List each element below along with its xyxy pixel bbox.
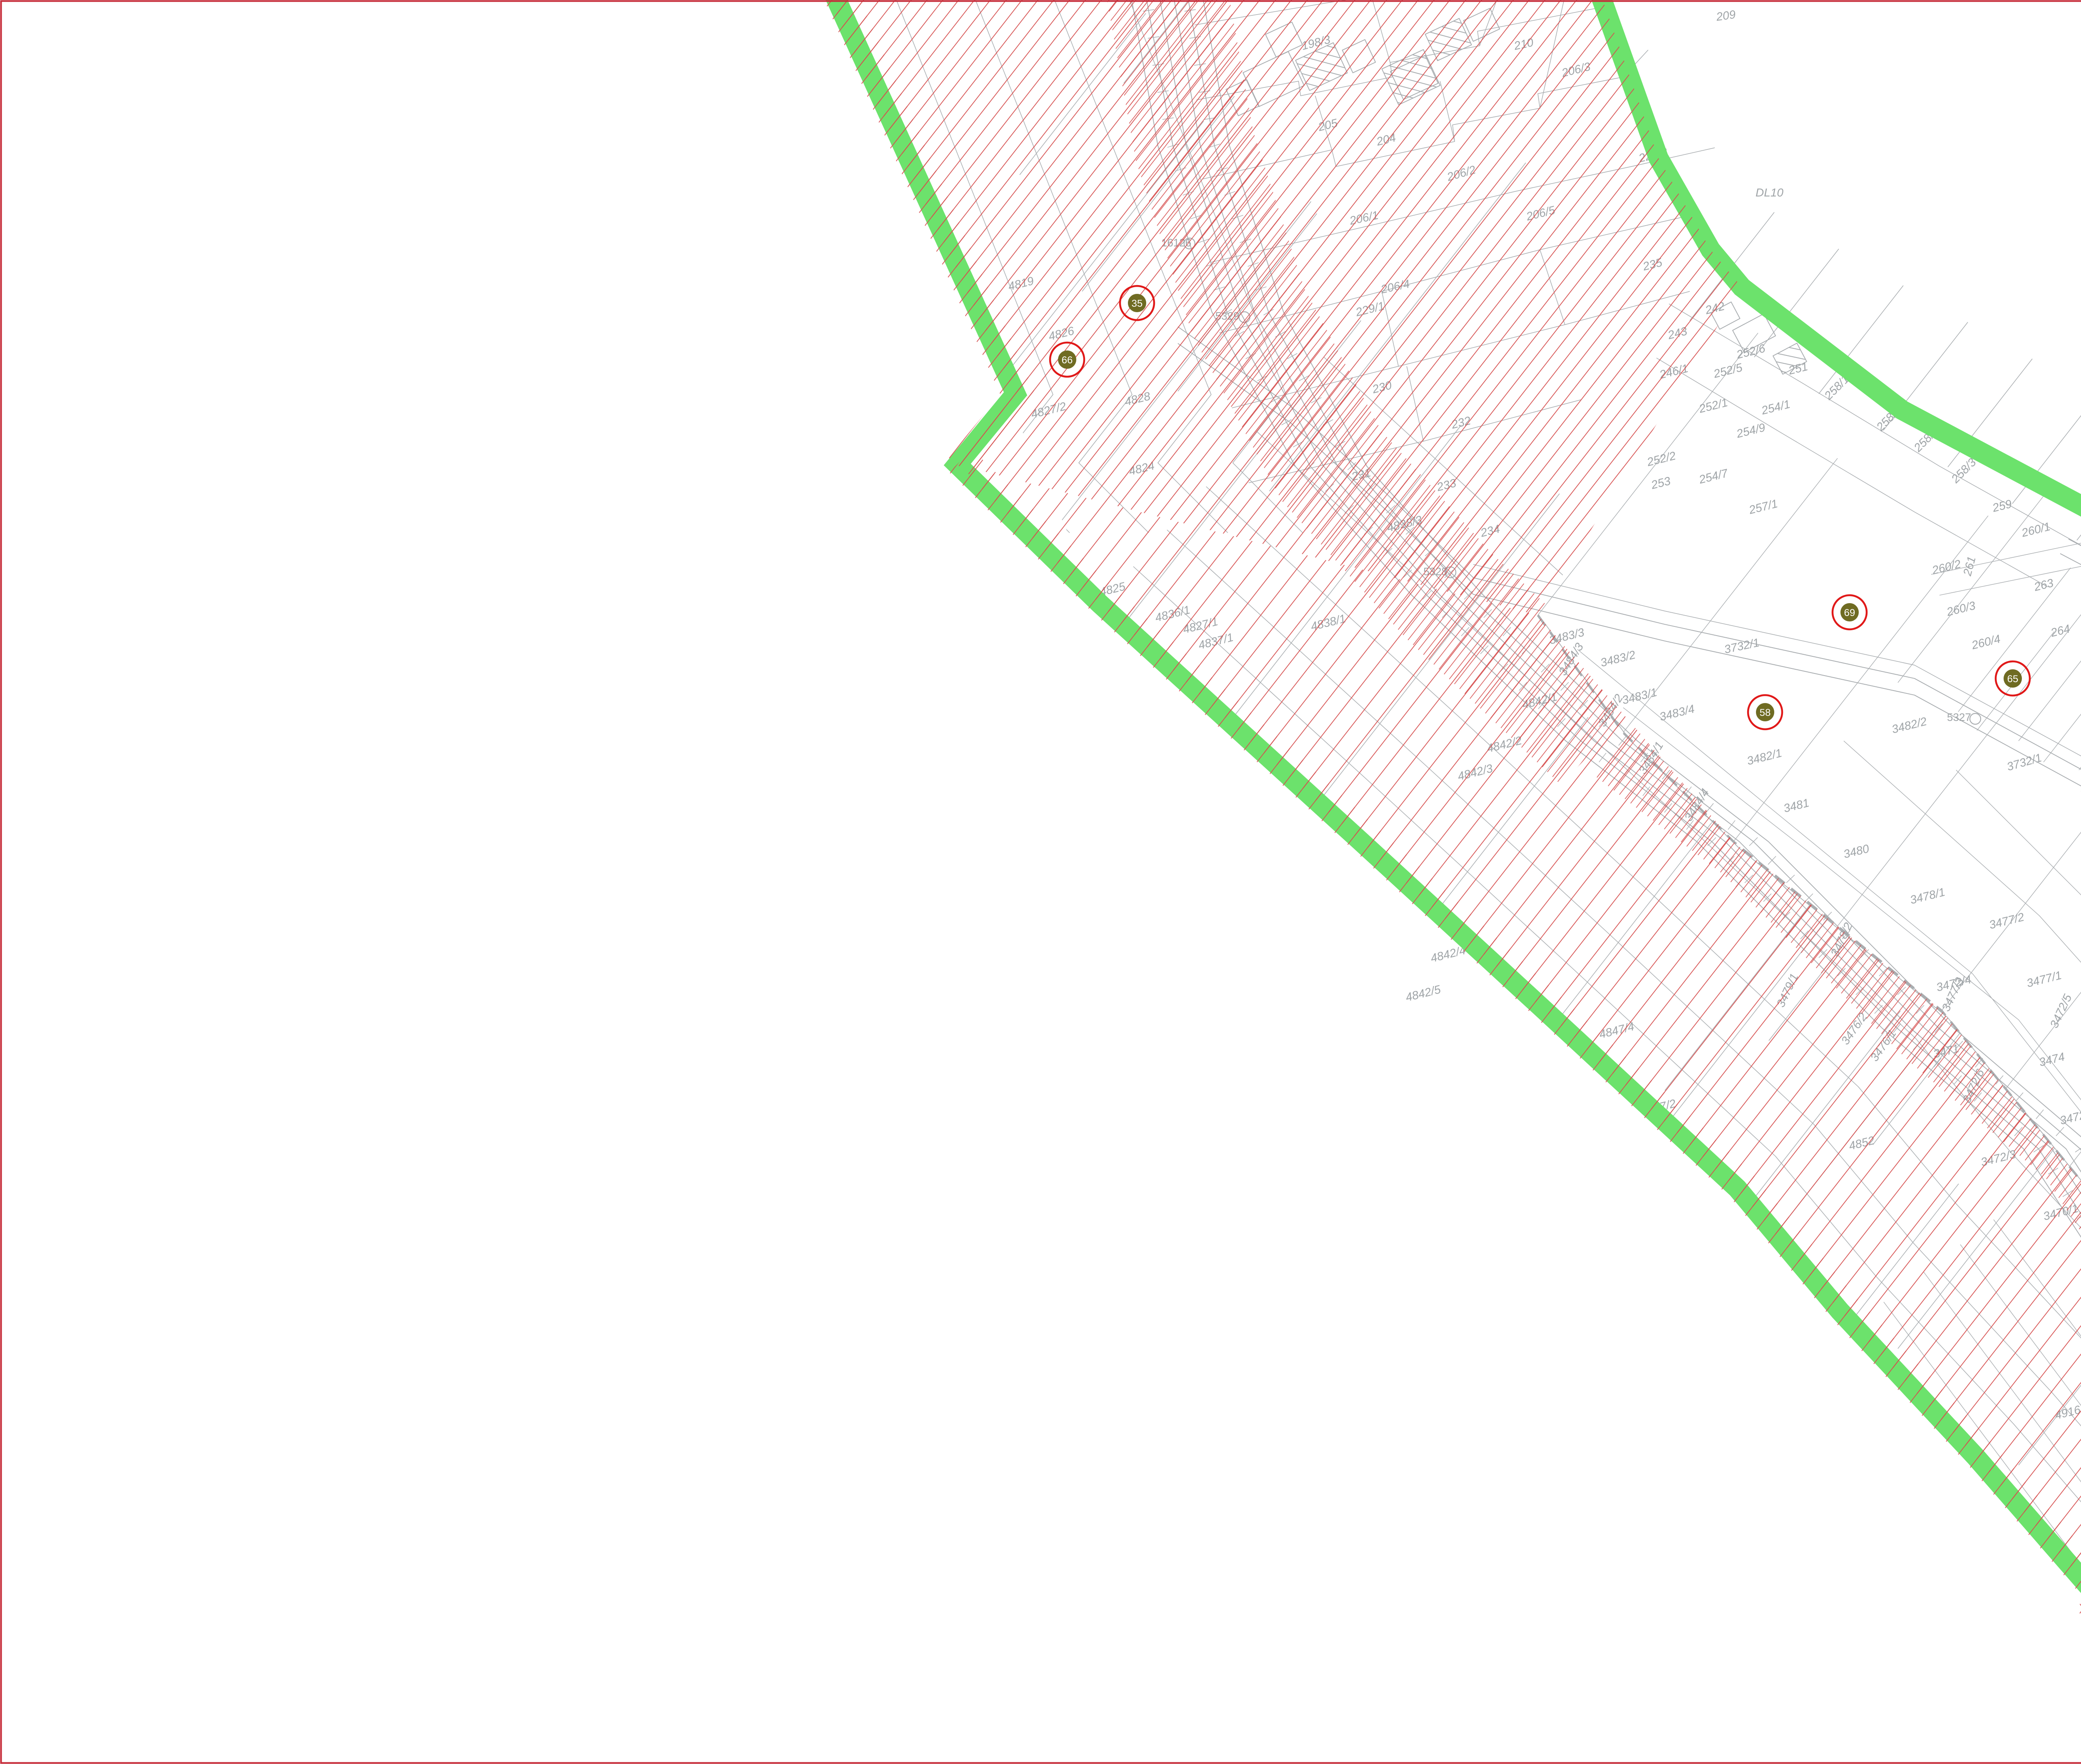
svg-text:58: 58 bbox=[1760, 707, 1771, 718]
svg-text:66: 66 bbox=[1062, 355, 1073, 366]
svg-text:DL10: DL10 bbox=[1756, 186, 1783, 199]
svg-text:65: 65 bbox=[2007, 673, 2019, 685]
svg-text:209: 209 bbox=[1715, 8, 1737, 23]
svg-text:5327: 5327 bbox=[1947, 711, 1971, 723]
svg-text:69: 69 bbox=[1844, 607, 1855, 619]
svg-text:35: 35 bbox=[1132, 298, 1143, 309]
